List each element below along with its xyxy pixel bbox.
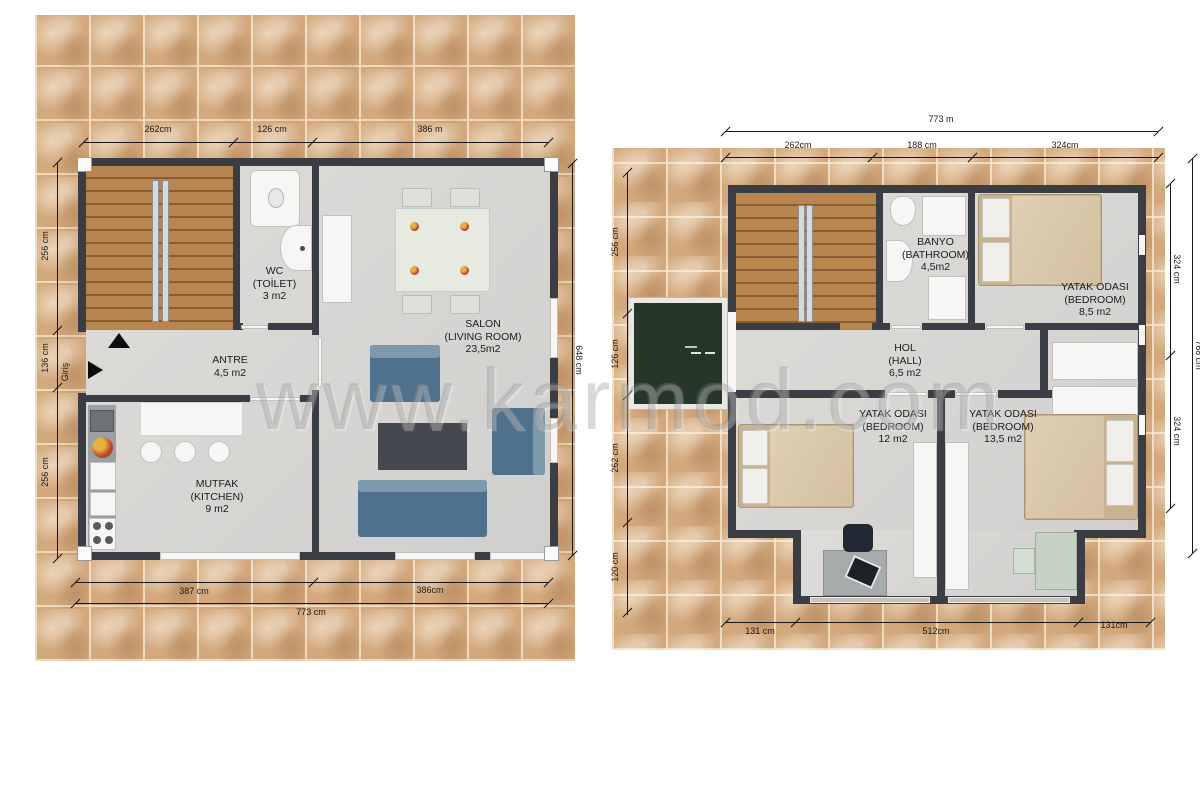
- corner-post: [544, 157, 559, 172]
- window: [550, 418, 558, 463]
- dim-line-top-inner: [725, 157, 1158, 158]
- table-decal: [410, 266, 419, 275]
- salon-cabinet: [322, 215, 352, 303]
- partition-wc-bottom-b: [268, 323, 319, 330]
- pillow: [1106, 464, 1134, 506]
- wardrobe-tall: [945, 442, 969, 590]
- stove-burner: [105, 536, 113, 544]
- balcony-rail-mark: [705, 352, 715, 354]
- partition-hall-top-a: [736, 323, 840, 330]
- notch-wall-left-lower: [793, 530, 801, 604]
- window: [1139, 325, 1145, 345]
- bar-stool: [140, 441, 162, 463]
- pillow: [982, 242, 1010, 282]
- kitchen-microwave: [90, 410, 114, 432]
- label-mutfak: MUTFAK(KITCHEN)9 m2: [172, 478, 262, 516]
- stair-railing: [162, 180, 169, 322]
- partition-kitchen-b: [300, 395, 312, 402]
- notch-wall-bottom-right: [1074, 530, 1146, 538]
- stair-railing: [798, 205, 805, 322]
- table-decal: [460, 222, 469, 231]
- dim-126-top: 126 cm: [232, 124, 312, 134]
- label-giris: Giriş: [60, 337, 72, 407]
- floorplan-image: WC(TOİLET)3 m2 ANTRE4,5 m2 SALON(LIVING …: [0, 0, 1200, 800]
- table-decal: [460, 266, 469, 275]
- entrance-direction-arrow: [108, 333, 130, 348]
- window: [1139, 235, 1145, 255]
- bar-stool: [174, 441, 196, 463]
- door-leaf-bedroom-top: [986, 325, 1024, 329]
- dim-131-bottom-a: 131 cm: [720, 626, 800, 636]
- kitchen-fruit-bowl: [92, 437, 113, 458]
- exterior-wall-top: [728, 185, 1146, 193]
- dim-256-left-b: 256 cm: [40, 437, 52, 507]
- door-leaf-bedroom-left: [886, 392, 927, 396]
- dim-262-top2: 262cm: [758, 140, 838, 150]
- notch-wall-bottom-left: [728, 530, 800, 538]
- partition-wc-left: [233, 166, 240, 330]
- kitchen-fridge: [90, 462, 116, 490]
- dim-324-top2: 324cm: [1025, 140, 1105, 150]
- dim-512-bottom: 512cm: [896, 626, 976, 636]
- window: [1139, 415, 1145, 435]
- kitchen-oven: [90, 492, 116, 516]
- stair-railing: [152, 180, 159, 322]
- exterior-wall-top: [78, 158, 558, 166]
- dim-136-left: 136 cm: [40, 323, 52, 393]
- toilet: [890, 196, 916, 226]
- dim-line-top: [83, 142, 548, 143]
- ground-floor-plan: [78, 158, 558, 560]
- exterior-wall-left-upper: [78, 158, 86, 332]
- door-leaf-antre-salon: [318, 337, 322, 387]
- wardrobe-tall: [913, 442, 937, 578]
- window: [490, 552, 545, 560]
- dim-386-top: 386 m: [390, 124, 470, 134]
- dining-table: [395, 208, 490, 292]
- dim-256-left-a: 256 cm: [40, 211, 52, 281]
- dim-131-bottom-b: 131cm: [1074, 620, 1154, 630]
- label-wc: WC(TOİLET)3 m2: [227, 265, 322, 303]
- pillow: [742, 430, 768, 466]
- notch-wall-right-lower: [1077, 530, 1085, 604]
- partition-kitchen-a: [86, 395, 250, 402]
- dim-262-left2: 262 cm: [610, 423, 622, 493]
- partition-stairs-right: [876, 193, 883, 330]
- balcony-door: [728, 312, 736, 392]
- pillow: [982, 198, 1010, 238]
- window: [550, 298, 558, 358]
- stair-railing: [806, 205, 813, 322]
- window: [160, 552, 300, 560]
- label-bedroom-right: YATAK ODASI(BEDROOM)13,5 m2: [948, 408, 1058, 446]
- dim-256-left2: 256 cm: [610, 207, 622, 277]
- window-lower: [810, 597, 930, 603]
- label-salon: SALON(LIVING ROOM)23,5m2: [428, 318, 538, 356]
- dim-387-bottom: 387 cm: [154, 586, 234, 596]
- corner-post: [544, 546, 559, 561]
- wardrobe: [1052, 342, 1138, 380]
- coffee-table: [378, 423, 467, 470]
- dim-386-bottom: 386cm: [390, 585, 470, 595]
- dim-648-right: 648 cm: [572, 325, 584, 395]
- entrance-door-arrow: [88, 361, 103, 379]
- door-leaf-bedroom-right: [956, 392, 997, 396]
- dim-324-right-a: 324 cm: [1170, 234, 1182, 304]
- door-leaf-wc: [241, 325, 268, 329]
- corner-post: [77, 546, 92, 561]
- desk-right: [1035, 532, 1077, 590]
- sofa-cushions: [358, 480, 487, 492]
- dim-120-left2: 120 cm: [610, 532, 622, 602]
- dim-line-top-total: [725, 131, 1158, 132]
- partition-salon-upper: [312, 166, 319, 335]
- shower-drain: [268, 188, 284, 208]
- dim-773-bottom: 773 cm: [271, 607, 351, 617]
- wc-sink-faucet: [300, 246, 305, 251]
- exterior-wall-bottom: [78, 552, 558, 560]
- partition-hall-wardrobe: [1040, 323, 1048, 390]
- dim-262-top: 262cm: [118, 124, 198, 134]
- dining-chair: [402, 188, 432, 207]
- exterior-wall-right: [550, 158, 558, 560]
- pillow: [742, 468, 768, 504]
- staircase: [86, 166, 233, 330]
- dim-773-top: 773 m: [901, 114, 981, 124]
- partition-hall-top-b: [872, 323, 890, 330]
- stove-burner: [93, 522, 101, 530]
- shower-unit: [922, 196, 966, 236]
- bar-stool: [208, 441, 230, 463]
- door-leaf-kitchen: [250, 397, 300, 401]
- dining-chair: [402, 295, 432, 314]
- corner-post: [77, 157, 92, 172]
- partition-salon-lower: [312, 390, 319, 552]
- label-antre: ANTRE4,5 m2: [185, 354, 275, 379]
- partition-hall-top-c: [922, 323, 975, 330]
- desk-chair-right: [1013, 548, 1035, 574]
- dim-line-left: [57, 162, 58, 558]
- pillow: [1106, 420, 1134, 462]
- label-bedroom-top: YATAK ODASI(BEDROOM)8,5 m2: [1040, 281, 1150, 319]
- loveseat-back: [533, 408, 545, 475]
- label-hol: HOL(HALL)6,5 m2: [865, 342, 945, 380]
- partition-bedroom-top-a: [975, 323, 985, 330]
- exterior-wall-left-lower: [78, 393, 86, 560]
- kitchen-island: [140, 402, 243, 436]
- balcony-rail-mark: [691, 352, 701, 354]
- balcony: [628, 297, 728, 410]
- stove-burner: [105, 522, 113, 530]
- label-bedroom-left: YATAK ODASI(BEDROOM)12 m2: [838, 408, 948, 446]
- dim-126-left2: 126 cm: [610, 319, 622, 389]
- dim-188-top2: 188 cm: [882, 140, 962, 150]
- duvet: [1012, 196, 1100, 284]
- label-banyo: BANYO(BATHROOM)4,5m2: [888, 236, 983, 274]
- door-leaf-banyo: [891, 325, 921, 329]
- window: [395, 552, 475, 560]
- partition-bedrooms-a: [736, 390, 885, 398]
- dining-chair: [450, 188, 480, 207]
- table-decal: [410, 222, 419, 231]
- stove-burner: [93, 536, 101, 544]
- balcony-rail-mark: [685, 346, 697, 348]
- dim-768-right: 768 cm: [1192, 320, 1200, 390]
- desk-chair-left: [843, 524, 873, 552]
- dim-line-bottom-outer: [75, 603, 548, 604]
- banyo-cabinet: [928, 276, 966, 320]
- dining-chair: [450, 295, 480, 314]
- window-lower: [948, 597, 1070, 603]
- dim-324-right-b: 324 cm: [1170, 396, 1182, 466]
